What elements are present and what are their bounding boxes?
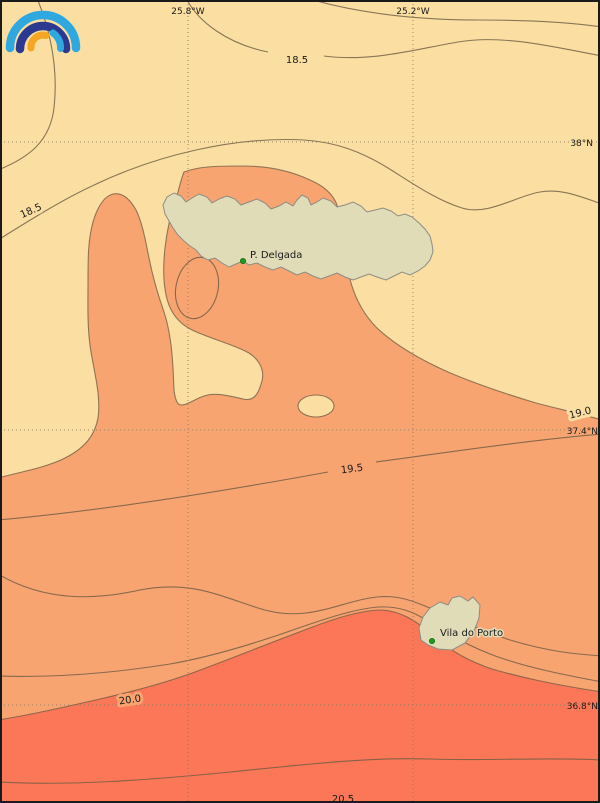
- parallel-label: 37.4°N: [567, 427, 598, 437]
- map-canvas: 18.5 18.5 19.0 19.5 20.0 20.5 25.8°W 25.…: [0, 0, 600, 803]
- place-label: P. Delgada: [250, 250, 302, 261]
- place-marker-dot: [240, 258, 245, 263]
- cool-spot-islet: [298, 395, 334, 417]
- place-marker-dot: [429, 638, 434, 643]
- place-label: Vila do Porto: [440, 628, 503, 639]
- meridian-label: 25.8°W: [171, 7, 205, 17]
- meridian-label: 25.2°W: [396, 7, 430, 17]
- sst-map: 18.5 18.5 19.0 19.5 20.0 20.5 25.8°W 25.…: [0, 0, 600, 803]
- parallel-label: 36.8°N: [567, 702, 598, 712]
- contour-label: 18.5: [286, 55, 308, 66]
- parallel-label: 38°N: [570, 139, 593, 149]
